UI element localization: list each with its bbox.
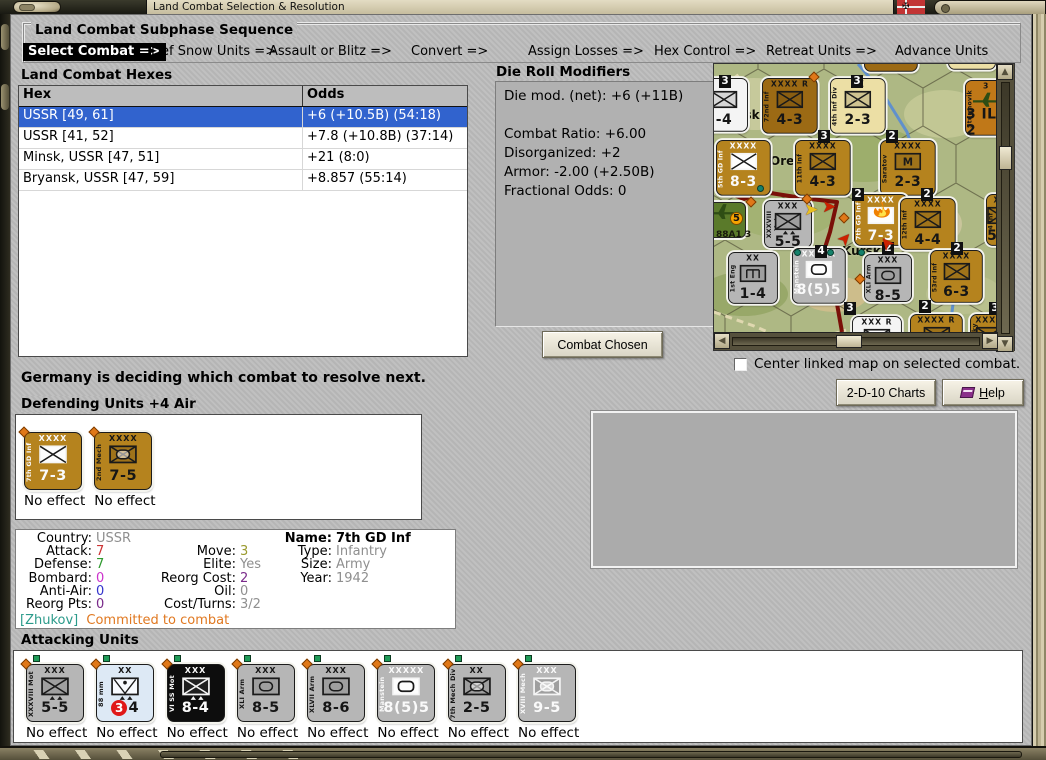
info-value: 2 bbox=[240, 572, 284, 585]
combat-hex-row[interactable]: USSR [41, 52]+7.8 (+10.8B) (37:14) bbox=[19, 128, 467, 149]
unit-name-vertical bbox=[911, 319, 921, 332]
unit-name-vertical: Manstein bbox=[793, 253, 803, 301]
inf-symbol-icon bbox=[714, 90, 737, 113]
window-title: Land Combat Selection & Resolution bbox=[146, 0, 894, 14]
info-value: 3/2 bbox=[240, 598, 284, 611]
unit-size: XXXX bbox=[894, 141, 922, 152]
unit-strength: 2-3 bbox=[895, 175, 922, 191]
table-header: Hex Odds bbox=[19, 86, 467, 107]
info-label bbox=[284, 598, 336, 611]
unit-counter[interactable]: 1st EngXX1-4 bbox=[728, 252, 778, 304]
unit-counter[interactable]: 12th InfXXXX4-4 bbox=[900, 198, 956, 250]
map-viewport[interactable]: nskOrelKursk-472nd InfXXXX R4-34th Inf D… bbox=[714, 64, 996, 332]
supply-marker bbox=[314, 655, 321, 662]
eng-symbol-icon bbox=[740, 264, 767, 287]
modifier-line bbox=[504, 106, 714, 125]
unit-counter[interactable]: MansteinXXXXX8(5)5 bbox=[377, 664, 435, 722]
column-header-hex: Hex bbox=[19, 86, 303, 106]
hex-control-number: 3 bbox=[818, 130, 830, 143]
unit-effect-label: No effect bbox=[24, 493, 85, 509]
unit-effect-label: No effect bbox=[377, 725, 438, 741]
window-menu-button[interactable] bbox=[13, 1, 61, 13]
unit-strength: 8(5)5 bbox=[383, 700, 429, 717]
unit-strength: 8-3 bbox=[730, 175, 757, 191]
vertical-scroll-thumb[interactable] bbox=[999, 146, 1012, 170]
unit-strength: 8-4 bbox=[182, 700, 210, 717]
supply-marker bbox=[525, 655, 532, 662]
unit-strength: 9-5 bbox=[533, 700, 561, 717]
info-label: Year: bbox=[284, 572, 336, 585]
hex-cell: Bryansk, USSR [47, 59] bbox=[19, 170, 303, 190]
unit-name-vertical: XVIII Mech bbox=[519, 669, 529, 719]
book-icon bbox=[960, 387, 975, 398]
info-label: Elite: bbox=[148, 558, 240, 571]
unit-effect-label: No effect bbox=[94, 493, 155, 509]
land-combat-dialog: Land Combat Subphase Sequence Select Com… bbox=[10, 14, 1032, 746]
inf-white-symbol-icon bbox=[730, 152, 757, 175]
hex-control-number: 3 bbox=[989, 302, 996, 315]
unit-name-vertical: 53rd Inf bbox=[931, 255, 941, 300]
air-count-badge: 5 bbox=[730, 212, 743, 225]
unit-counter[interactable]: 11th InfXXXX4-3 bbox=[795, 140, 851, 196]
subphase-step: Assign Losses => bbox=[528, 43, 644, 61]
unit-counter[interactable]: 88 mmXX34 bbox=[96, 664, 154, 722]
unit-counter[interactable]: XVIII MechXXX9-5 bbox=[518, 664, 576, 722]
mot-symbol-icon bbox=[41, 676, 69, 700]
combat-results-panel bbox=[591, 411, 1017, 568]
unit-cell: 88 mmXX34No effect bbox=[96, 655, 157, 741]
unit-size: XXXX R bbox=[917, 315, 955, 326]
unit-effect-label: No effect bbox=[518, 725, 579, 741]
supply-marker bbox=[244, 655, 251, 662]
odds-cell: +8.857 (55:14) bbox=[303, 170, 467, 190]
unit-name-vertical: 72nd Inf bbox=[763, 83, 773, 131]
unit-name-vertical: 7th Mech Div bbox=[449, 669, 459, 719]
unit-strength: 6-3 bbox=[943, 285, 970, 301]
unit-name-vertical: 12th Inf bbox=[901, 203, 911, 247]
inf-symbol-icon bbox=[923, 326, 950, 332]
modifier-line: Disorganized: +2 bbox=[504, 144, 714, 163]
odds-cell: +7.8 (+10.8B) (37:14) bbox=[303, 128, 467, 148]
unit-counter[interactable]: 72nd InfXXXX R4-3 bbox=[762, 78, 818, 134]
unit-counter[interactable]: XXX R bbox=[852, 316, 902, 332]
subphase-step: Select Combat => bbox=[23, 43, 166, 61]
unit-size: 3 bbox=[983, 81, 989, 92]
unit-size: XXX bbox=[44, 665, 66, 676]
unit-name-vertical: Manstein bbox=[378, 669, 388, 719]
modifier-line: Die mod. (net): +6 (+11B) bbox=[504, 87, 714, 106]
unit-strength: 1-4 bbox=[740, 287, 767, 303]
info-value bbox=[336, 585, 451, 598]
combat-hex-row[interactable]: USSR [49, 61]+6 (+10.5B) (54:18) bbox=[19, 107, 467, 128]
unit-size: XXX R bbox=[861, 317, 892, 328]
unit-counter[interactable]: 7th Mech DivXX2-5 bbox=[448, 664, 506, 722]
unit-info-panel: Country:USSRName:7th GD InfAttack:7Move:… bbox=[15, 529, 456, 629]
phase-status-text: Germany is deciding which combat to reso… bbox=[21, 370, 426, 386]
unit-strength: 34 bbox=[111, 700, 139, 717]
unit-counter[interactable]: XLI ArmXXX8-5 bbox=[864, 254, 912, 302]
info-value bbox=[336, 598, 451, 611]
attacking-units-panel: XXXVIII MotXXX5-5No effect88 mmXX34No ef… bbox=[13, 650, 1023, 743]
hex-cell: USSR [41, 52] bbox=[19, 128, 303, 148]
unit-cell: XXXVIII MotXXX5-5No effect bbox=[26, 655, 87, 741]
unit-cell: XLVII ArmXXX8-6No effect bbox=[307, 655, 368, 741]
unit-counter[interactable]: XXXVIII MotXXX5-5 bbox=[26, 664, 84, 722]
supply-marker bbox=[103, 655, 110, 662]
unit-counter[interactable] bbox=[864, 64, 918, 72]
inf-symbol-icon bbox=[809, 152, 836, 175]
attack-arrow-icon: ➤ bbox=[822, 200, 836, 214]
germany-flag-icon: ✠ bbox=[897, 0, 925, 14]
attacking-units-title: Attacking Units bbox=[21, 632, 139, 648]
mech-symbol-icon bbox=[463, 676, 491, 700]
unit-cell: VI SS MotXXX8-4No effect bbox=[167, 655, 228, 741]
unit-name-vertical: 4th Inf Div bbox=[831, 83, 841, 131]
unit-name-vertical: Saratov bbox=[881, 145, 891, 193]
die-roll-modifiers-panel: Die mod. (net): +6 (+11B) Combat Ratio: … bbox=[495, 81, 723, 327]
subphase-step: Retreat Units => bbox=[766, 43, 877, 61]
modifier-line: Armor: -2.00 (+2.50B) bbox=[504, 163, 714, 182]
supply-marker bbox=[384, 655, 391, 662]
fire-icon bbox=[871, 201, 892, 222]
unit-counter[interactable] bbox=[948, 64, 996, 70]
unit-size: XXX bbox=[325, 665, 347, 676]
hex-control-number: 2 bbox=[921, 188, 933, 201]
column-header-odds: Odds bbox=[303, 86, 467, 106]
armor-symbol-icon bbox=[322, 676, 350, 700]
inf-symbol-icon bbox=[943, 262, 970, 285]
unit-name-vertical bbox=[949, 64, 959, 67]
unit-cell: 7th GD InfXXXX7-3No effect bbox=[24, 423, 85, 509]
unit-strength: 8-5 bbox=[252, 700, 280, 717]
window-controls[interactable] bbox=[934, 0, 1046, 15]
hex-control-number: 2 bbox=[951, 242, 963, 255]
unit-counter[interactable]: XLVII ArmXXX8-6 bbox=[307, 664, 365, 722]
unit-counter[interactable]: 53rd InfXXXX6-3 bbox=[930, 250, 983, 303]
window-frame-left bbox=[0, 14, 10, 746]
loss-badge: 3 bbox=[111, 700, 127, 716]
subphase-step: Assault or Blitz => bbox=[269, 43, 392, 61]
hex-control-number: 3 bbox=[844, 302, 856, 315]
unit-name-vertical: 5th GD Inf bbox=[717, 145, 727, 193]
subphase-step: Def Snow Units => bbox=[151, 43, 276, 61]
supply-marker bbox=[455, 655, 462, 662]
scroll-up-button[interactable]: ▲ bbox=[997, 64, 1013, 80]
hq-symbol-icon bbox=[805, 260, 832, 283]
unit-size: XXXXX bbox=[388, 665, 424, 676]
supply-marker bbox=[33, 655, 40, 662]
unit-strength: 7-3 bbox=[39, 468, 67, 485]
unit-name-vertical: XLI Arm bbox=[865, 259, 875, 299]
inf-symbol-icon bbox=[776, 90, 803, 113]
subphase-sequence: Select Combat =>Def Snow Units =>Assault… bbox=[11, 43, 1021, 61]
hex-control-number: 2 bbox=[919, 300, 931, 313]
unit-name-vertical: Lucky bbox=[971, 319, 981, 332]
unit-name-vertical: XLI Arm bbox=[238, 669, 248, 719]
unit-counter[interactable]: XLI ArmXXX8-5 bbox=[237, 664, 295, 722]
unit-strength: -4 bbox=[716, 113, 732, 129]
info-label: Size: bbox=[284, 558, 336, 571]
info-value: Army bbox=[336, 558, 451, 571]
unit-size: XX bbox=[746, 253, 760, 264]
unit-strength: 8(5)5 bbox=[797, 283, 841, 299]
unit-counter[interactable]: Sturmovik33 IL-2 bbox=[965, 80, 996, 136]
mech-symbol-icon bbox=[533, 676, 561, 700]
info-label: Reorg Pts: bbox=[20, 598, 96, 611]
unit-size: XXX bbox=[536, 665, 558, 676]
armor-symbol-icon bbox=[875, 266, 902, 289]
unit-strength: 8-6 bbox=[322, 700, 350, 717]
mot-symbol-icon bbox=[182, 676, 210, 700]
unit-name-vertical: 2nd Mech bbox=[95, 437, 105, 487]
unit-size: XXX bbox=[255, 665, 277, 676]
unit-name-vertical: 7th GD Inf bbox=[855, 199, 865, 243]
center-map-checkbox[interactable] bbox=[734, 358, 747, 371]
defending-units-panel: 7th GD InfXXXX7-3No effect2nd MechXXXX7-… bbox=[15, 414, 422, 520]
modifier-line: Fractional Odds: 0 bbox=[504, 182, 714, 201]
info-label bbox=[284, 585, 336, 598]
unit-size: XXX bbox=[778, 201, 799, 212]
inf-symbol-icon bbox=[844, 90, 871, 113]
unit-name-vertical: 4 Inf bbox=[987, 199, 996, 243]
window-frame-right bbox=[1032, 14, 1046, 746]
unit-counter[interactable]: 7th GD InfXXXX7-3 bbox=[24, 432, 82, 490]
objective-dot bbox=[827, 249, 834, 256]
commander-name: [Zhukov] bbox=[20, 613, 78, 628]
unit-counter[interactable]: 4 InfXX5-3 bbox=[986, 194, 996, 246]
unit-name-vertical: 7th GD Inf bbox=[25, 437, 35, 487]
combat-hexes-table[interactable]: Hex Odds USSR [49, 61]+6 (+10.5B) (54:18… bbox=[18, 85, 468, 357]
unit-strength: 8-5 bbox=[875, 289, 902, 305]
subphase-step: Convert => bbox=[411, 43, 488, 61]
defending-units-title: Defending Units +4 Air bbox=[21, 396, 196, 412]
unit-effect-label: No effect bbox=[448, 725, 509, 741]
unit-cell: MansteinXXXXX8(5)5No effect bbox=[377, 655, 438, 741]
unit-strength: 7-5 bbox=[109, 468, 137, 485]
unit-size: XXX bbox=[185, 665, 207, 676]
help-button[interactable]: Help bbox=[942, 379, 1024, 406]
subphase-title: Land Combat Subphase Sequence bbox=[31, 22, 297, 38]
unit-size: XXXX bbox=[109, 433, 138, 444]
info-value: 7 bbox=[96, 558, 148, 571]
unit-effect-label: No effect bbox=[237, 725, 298, 741]
info-label: Cost/Turns: bbox=[148, 598, 240, 611]
unit-name-vertical: VI SS Mot bbox=[168, 669, 178, 719]
center-map-checkbox-row: Center linked map on selected combat. bbox=[734, 356, 1020, 372]
unit-strength: 4-4 bbox=[915, 233, 942, 249]
unit-effect-label: No effect bbox=[167, 725, 228, 741]
window-titlebar: Land Combat Selection & Resolution ✠ bbox=[0, 0, 1046, 14]
objective-dot bbox=[794, 249, 801, 256]
info-value: 1942 bbox=[336, 572, 451, 585]
map-vertical-scrollbar[interactable]: ▲ ▼ bbox=[996, 64, 1014, 352]
combat-hex-row[interactable]: Minsk, USSR [47, 51]+21 (8:0) bbox=[19, 149, 467, 170]
charts-button[interactable]: 2-D-10 Charts bbox=[836, 379, 936, 406]
unit-name-vertical: XXXVIII Mot bbox=[27, 669, 37, 719]
info-value: 0 bbox=[96, 572, 148, 585]
unit-cell: 2nd MechXXXX7-5No effect bbox=[94, 423, 155, 509]
scroll-left-button[interactable]: ◀ bbox=[714, 333, 730, 349]
hq-symbol-icon bbox=[392, 676, 420, 700]
unit-counter[interactable]: XXXX R bbox=[910, 314, 963, 332]
combat-hexes-title: Land Combat Hexes bbox=[21, 67, 172, 83]
info-label: Defense: bbox=[20, 558, 96, 571]
inf-white-symbol-icon bbox=[864, 328, 891, 332]
unit-counter[interactable]: LuckyXXXX bbox=[970, 314, 996, 332]
combat-hex-row[interactable]: Bryansk, USSR [47, 59]+8.857 (55:14) bbox=[19, 170, 467, 191]
unit-name-vertical: XXXVIII Mot bbox=[765, 205, 775, 245]
info-label: Reorg Cost: bbox=[148, 572, 240, 585]
info-value: 0 bbox=[96, 598, 148, 611]
unit-cell: 7th Mech DivXX2-5No effect bbox=[448, 655, 509, 741]
unit-strength: 4-3 bbox=[810, 175, 837, 191]
map-horizontal-scrollbar[interactable]: ◀ ▶ bbox=[714, 332, 998, 350]
inf-white-symbol-icon bbox=[39, 444, 67, 468]
unit-size: XXXX bbox=[39, 433, 68, 444]
m-symbol-icon: M bbox=[894, 152, 921, 175]
info-value: Yes bbox=[240, 558, 284, 571]
mot-symbol-icon bbox=[775, 212, 802, 235]
unit-strength: 2-3 bbox=[845, 113, 872, 129]
unit-strength: 5-5 bbox=[41, 700, 69, 717]
unit-name-vertical bbox=[865, 64, 875, 69]
combat-chosen-button[interactable]: Combat Chosen bbox=[542, 331, 663, 358]
commit-status: Committed to combat bbox=[86, 613, 229, 628]
unit-strength: 4-3 bbox=[777, 113, 804, 129]
armor-symbol-icon bbox=[252, 676, 280, 700]
unit-effect-label: No effect bbox=[26, 725, 87, 741]
supply-marker bbox=[174, 655, 181, 662]
objective-dot bbox=[757, 185, 764, 192]
hex-control-number: 3 bbox=[851, 75, 863, 88]
unit-size: XX bbox=[470, 665, 484, 676]
unit-counter[interactable]: VI SS MotXXX8-4 bbox=[167, 664, 225, 722]
unit-cell: XLI ArmXXX8-5No effect bbox=[237, 655, 298, 741]
hex-control-number: 3 bbox=[719, 75, 731, 88]
hex-cell: Minsk, USSR [47, 51] bbox=[19, 149, 303, 169]
center-map-checkbox-label: Center linked map on selected combat. bbox=[754, 356, 1020, 372]
unit-commander-line: [Zhukov] Committed to combat bbox=[20, 613, 451, 628]
unit-counter[interactable]: 2nd MechXXXX7-5 bbox=[94, 432, 152, 490]
modifier-line: Combat Ratio: +6.00 bbox=[504, 125, 714, 144]
unit-size: XXXX bbox=[730, 141, 758, 152]
unit-name-vertical: 11th Inf bbox=[796, 145, 806, 193]
unit-effect-label: No effect bbox=[96, 725, 157, 741]
unit-cell: XVIII MechXXX9-5No effect bbox=[518, 655, 579, 741]
unit-size: XXX bbox=[878, 255, 899, 266]
unit-name-vertical: 1st Eng bbox=[729, 257, 739, 301]
hex-cell: USSR [49, 61] bbox=[19, 107, 303, 127]
svg-text:M: M bbox=[903, 157, 913, 169]
horizontal-scroll-thumb[interactable] bbox=[836, 335, 862, 348]
unit-name-vertical: Sturmovik bbox=[966, 85, 976, 133]
unit-size: XX bbox=[118, 665, 132, 676]
hex-control-number: 4 bbox=[815, 245, 827, 258]
odds-cell: +6 (+10.5B) (54:18) bbox=[303, 107, 467, 127]
objective-dot bbox=[858, 249, 865, 256]
odds-cell: +21 (8:0) bbox=[303, 149, 467, 169]
subphase-step: Advance Units bbox=[895, 43, 988, 61]
unit-size: XXXX R bbox=[771, 79, 809, 90]
aa-symbol-icon bbox=[111, 676, 139, 700]
die-roll-modifiers-title: Die Roll Modifiers bbox=[496, 64, 630, 80]
air-id-label: 88A1 3 bbox=[716, 230, 751, 240]
window-frame-bottom bbox=[0, 746, 1046, 760]
inf-symbol-icon bbox=[914, 210, 941, 233]
hex-control-number: 2 bbox=[852, 188, 864, 201]
unit-name-vertical: 88 mm bbox=[97, 669, 107, 719]
subphase-step: Hex Control => bbox=[654, 43, 756, 61]
info-label: Bombard: bbox=[20, 572, 96, 585]
attack-arrow-icon: ➤ bbox=[804, 203, 818, 217]
hex-control-number: 2 bbox=[886, 130, 898, 143]
mech-symbol-icon bbox=[109, 444, 137, 468]
unit-name-vertical: XLVII Arm bbox=[308, 669, 318, 719]
scroll-right-button[interactable]: ▶ bbox=[982, 333, 998, 349]
scroll-down-button[interactable]: ▼ bbox=[997, 336, 1013, 352]
linked-map[interactable]: nskOrelKursk-472nd InfXXXX R4-34th Inf D… bbox=[713, 63, 1015, 351]
unit-effect-label: No effect bbox=[307, 725, 368, 741]
unit-name-vertical bbox=[853, 321, 863, 332]
unit-strength: 2-5 bbox=[463, 700, 491, 717]
